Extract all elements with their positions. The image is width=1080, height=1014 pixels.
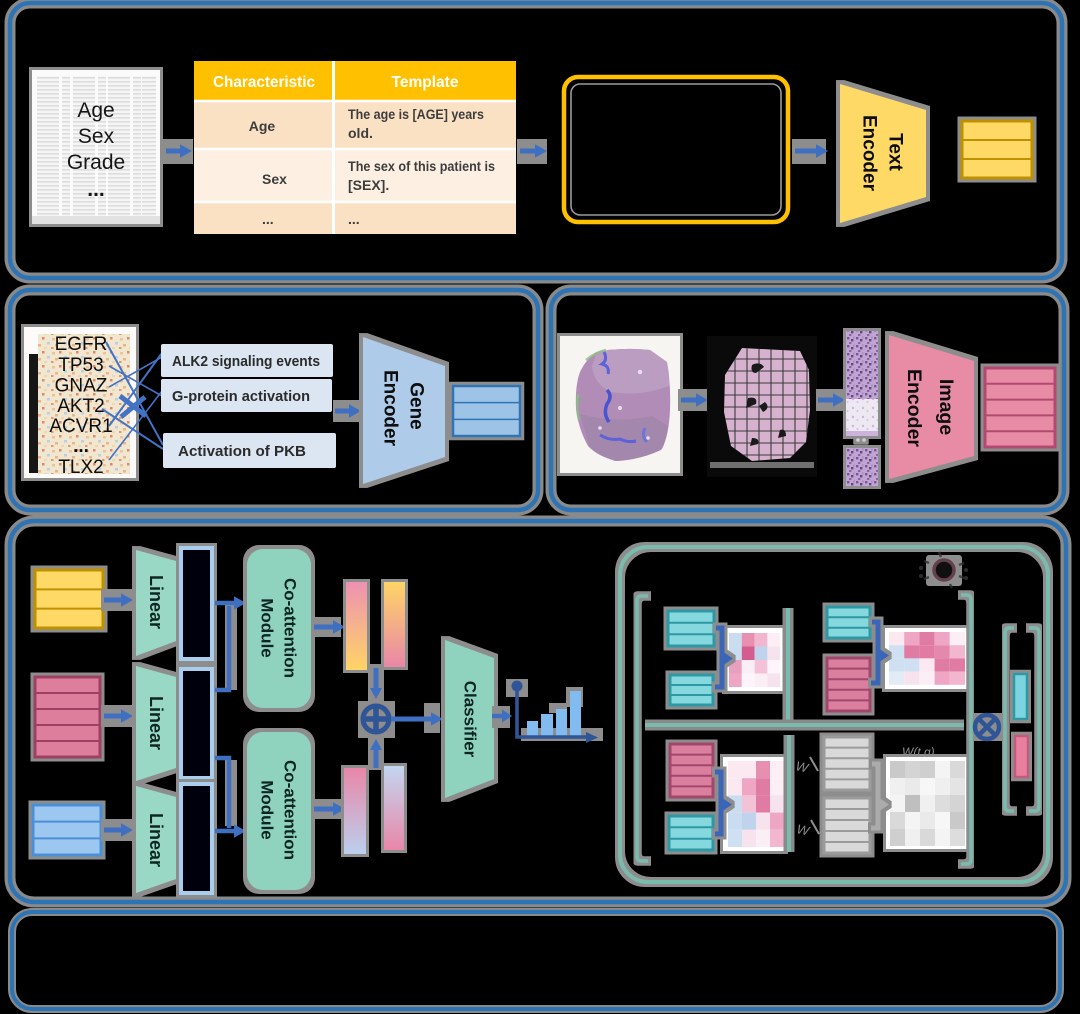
svg-text:ACVR1: ACVR1 bbox=[49, 416, 112, 437]
svg-text:...: ... bbox=[262, 211, 274, 227]
svg-text:W(t,g): W(t,g) bbox=[902, 745, 935, 759]
svg-text:Module: Module bbox=[258, 598, 277, 658]
svg-text:GNAZ: GNAZ bbox=[55, 376, 108, 397]
svg-text:Text: Text bbox=[885, 133, 906, 171]
svg-text:G-protein activation: G-protein activation bbox=[172, 388, 310, 405]
svg-text:EGFR: EGFR bbox=[55, 334, 108, 355]
svg-text:[SEX].: [SEX]. bbox=[348, 177, 389, 193]
svg-text:TLX2: TLX2 bbox=[58, 457, 103, 478]
svg-text:The age is [AGE] years: The age is [AGE] years bbox=[348, 106, 484, 122]
svg-text:Sex: Sex bbox=[78, 125, 115, 148]
svg-text:...: ... bbox=[87, 178, 105, 201]
svg-text:AKT2: AKT2 bbox=[57, 396, 105, 417]
svg-text:Co-attention: Co-attention bbox=[281, 760, 300, 860]
svg-text:Encoder: Encoder bbox=[903, 369, 925, 447]
svg-text:Co-attention: Co-attention bbox=[281, 578, 300, 678]
svg-text:old.: old. bbox=[348, 125, 373, 141]
svg-text:Encoder: Encoder bbox=[859, 115, 880, 192]
svg-text:Linear: Linear bbox=[146, 696, 166, 750]
svg-text:Linear: Linear bbox=[146, 575, 166, 629]
svg-text:ALK2 signaling events: ALK2 signaling events bbox=[172, 353, 320, 370]
svg-text:...: ... bbox=[348, 211, 360, 227]
svg-text:Module: Module bbox=[258, 780, 277, 840]
svg-text:Grade: Grade bbox=[67, 151, 125, 174]
svg-text:TP53: TP53 bbox=[58, 355, 103, 376]
svg-text:Linear: Linear bbox=[146, 813, 166, 867]
svg-text:...: ... bbox=[73, 436, 89, 457]
svg-text:Gene: Gene bbox=[406, 382, 427, 430]
svg-text:W: W bbox=[794, 758, 811, 776]
svg-text:Classifier: Classifier bbox=[461, 681, 480, 758]
svg-text:Sex: Sex bbox=[262, 171, 287, 187]
svg-text:The sex of this patient is: The sex of this patient is bbox=[348, 158, 495, 174]
svg-text:Activation of PKB: Activation of PKB bbox=[178, 443, 306, 460]
svg-text:Characteristic: Characteristic bbox=[213, 74, 315, 91]
svg-text:W: W bbox=[795, 821, 812, 839]
svg-text:Encoder: Encoder bbox=[380, 370, 401, 447]
svg-text:Template: Template bbox=[392, 74, 459, 91]
svg-text:Age: Age bbox=[77, 99, 114, 122]
svg-text:Age: Age bbox=[249, 118, 276, 134]
svg-text:Image: Image bbox=[935, 379, 957, 436]
